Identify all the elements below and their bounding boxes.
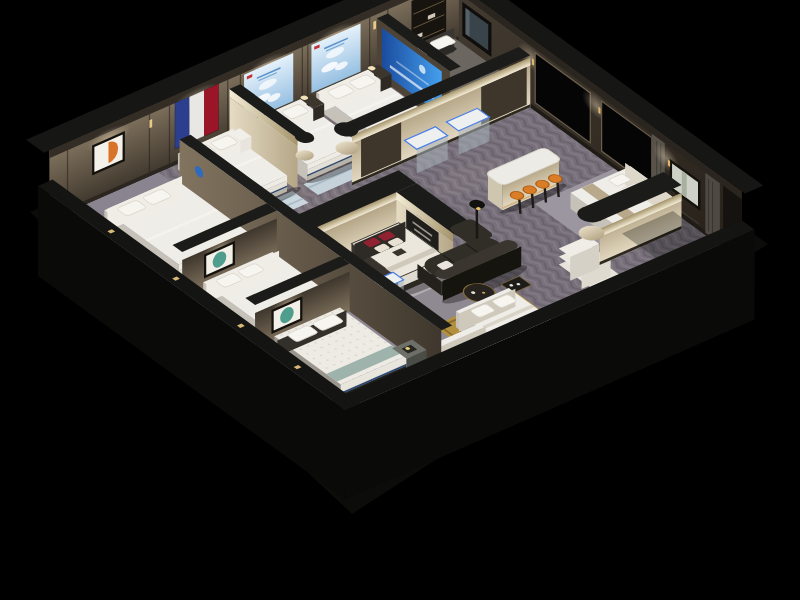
wall-sconce	[149, 119, 152, 128]
showroom-render	[0, 0, 800, 600]
wall-sconce	[373, 21, 376, 30]
isometric-showroom	[0, 0, 800, 600]
